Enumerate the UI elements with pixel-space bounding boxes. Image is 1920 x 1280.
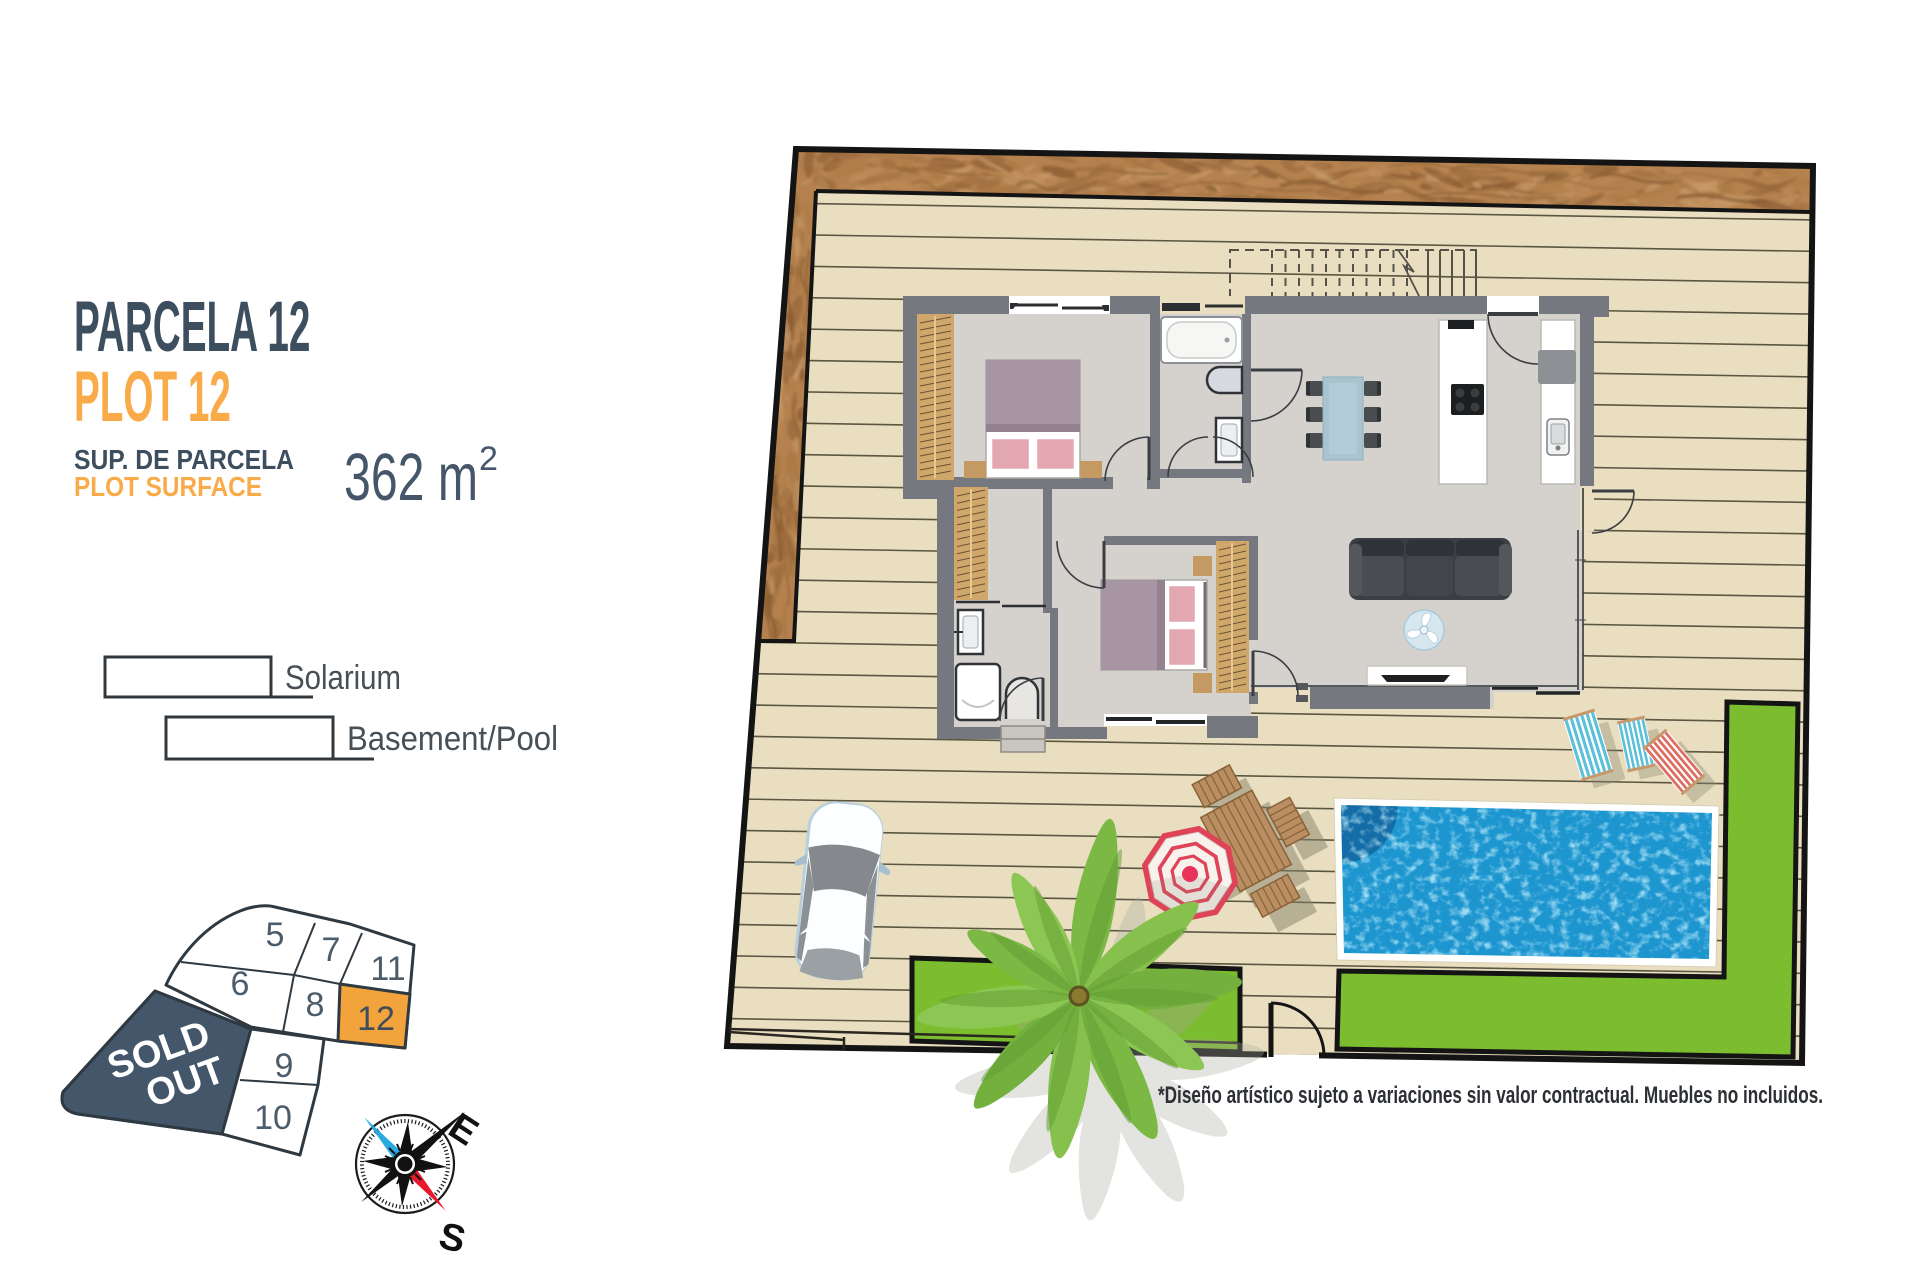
svg-text:PLOT SURFACE: PLOT SURFACE — [74, 471, 262, 502]
svg-text:12: 12 — [357, 1000, 395, 1038]
svg-text:11: 11 — [370, 950, 405, 988]
svg-text:PARCELA 12: PARCELA 12 — [74, 288, 310, 367]
svg-text:6: 6 — [231, 965, 250, 1003]
svg-text:*Diseño artístico sujeto a var: *Diseño artístico sujeto a variaciones s… — [1158, 1082, 1823, 1109]
svg-text:10: 10 — [254, 1099, 292, 1137]
svg-text:PLOT 12: PLOT 12 — [74, 358, 231, 437]
svg-text:2: 2 — [479, 440, 498, 478]
svg-text:5: 5 — [266, 916, 285, 954]
svg-text:362 m: 362 m — [344, 440, 478, 515]
svg-text:9: 9 — [275, 1047, 294, 1085]
svg-text:7: 7 — [322, 931, 341, 969]
svg-text:8: 8 — [306, 986, 325, 1024]
svg-text:Basement/Pool: Basement/Pool — [347, 720, 558, 758]
svg-text:Solarium: Solarium — [285, 659, 401, 697]
